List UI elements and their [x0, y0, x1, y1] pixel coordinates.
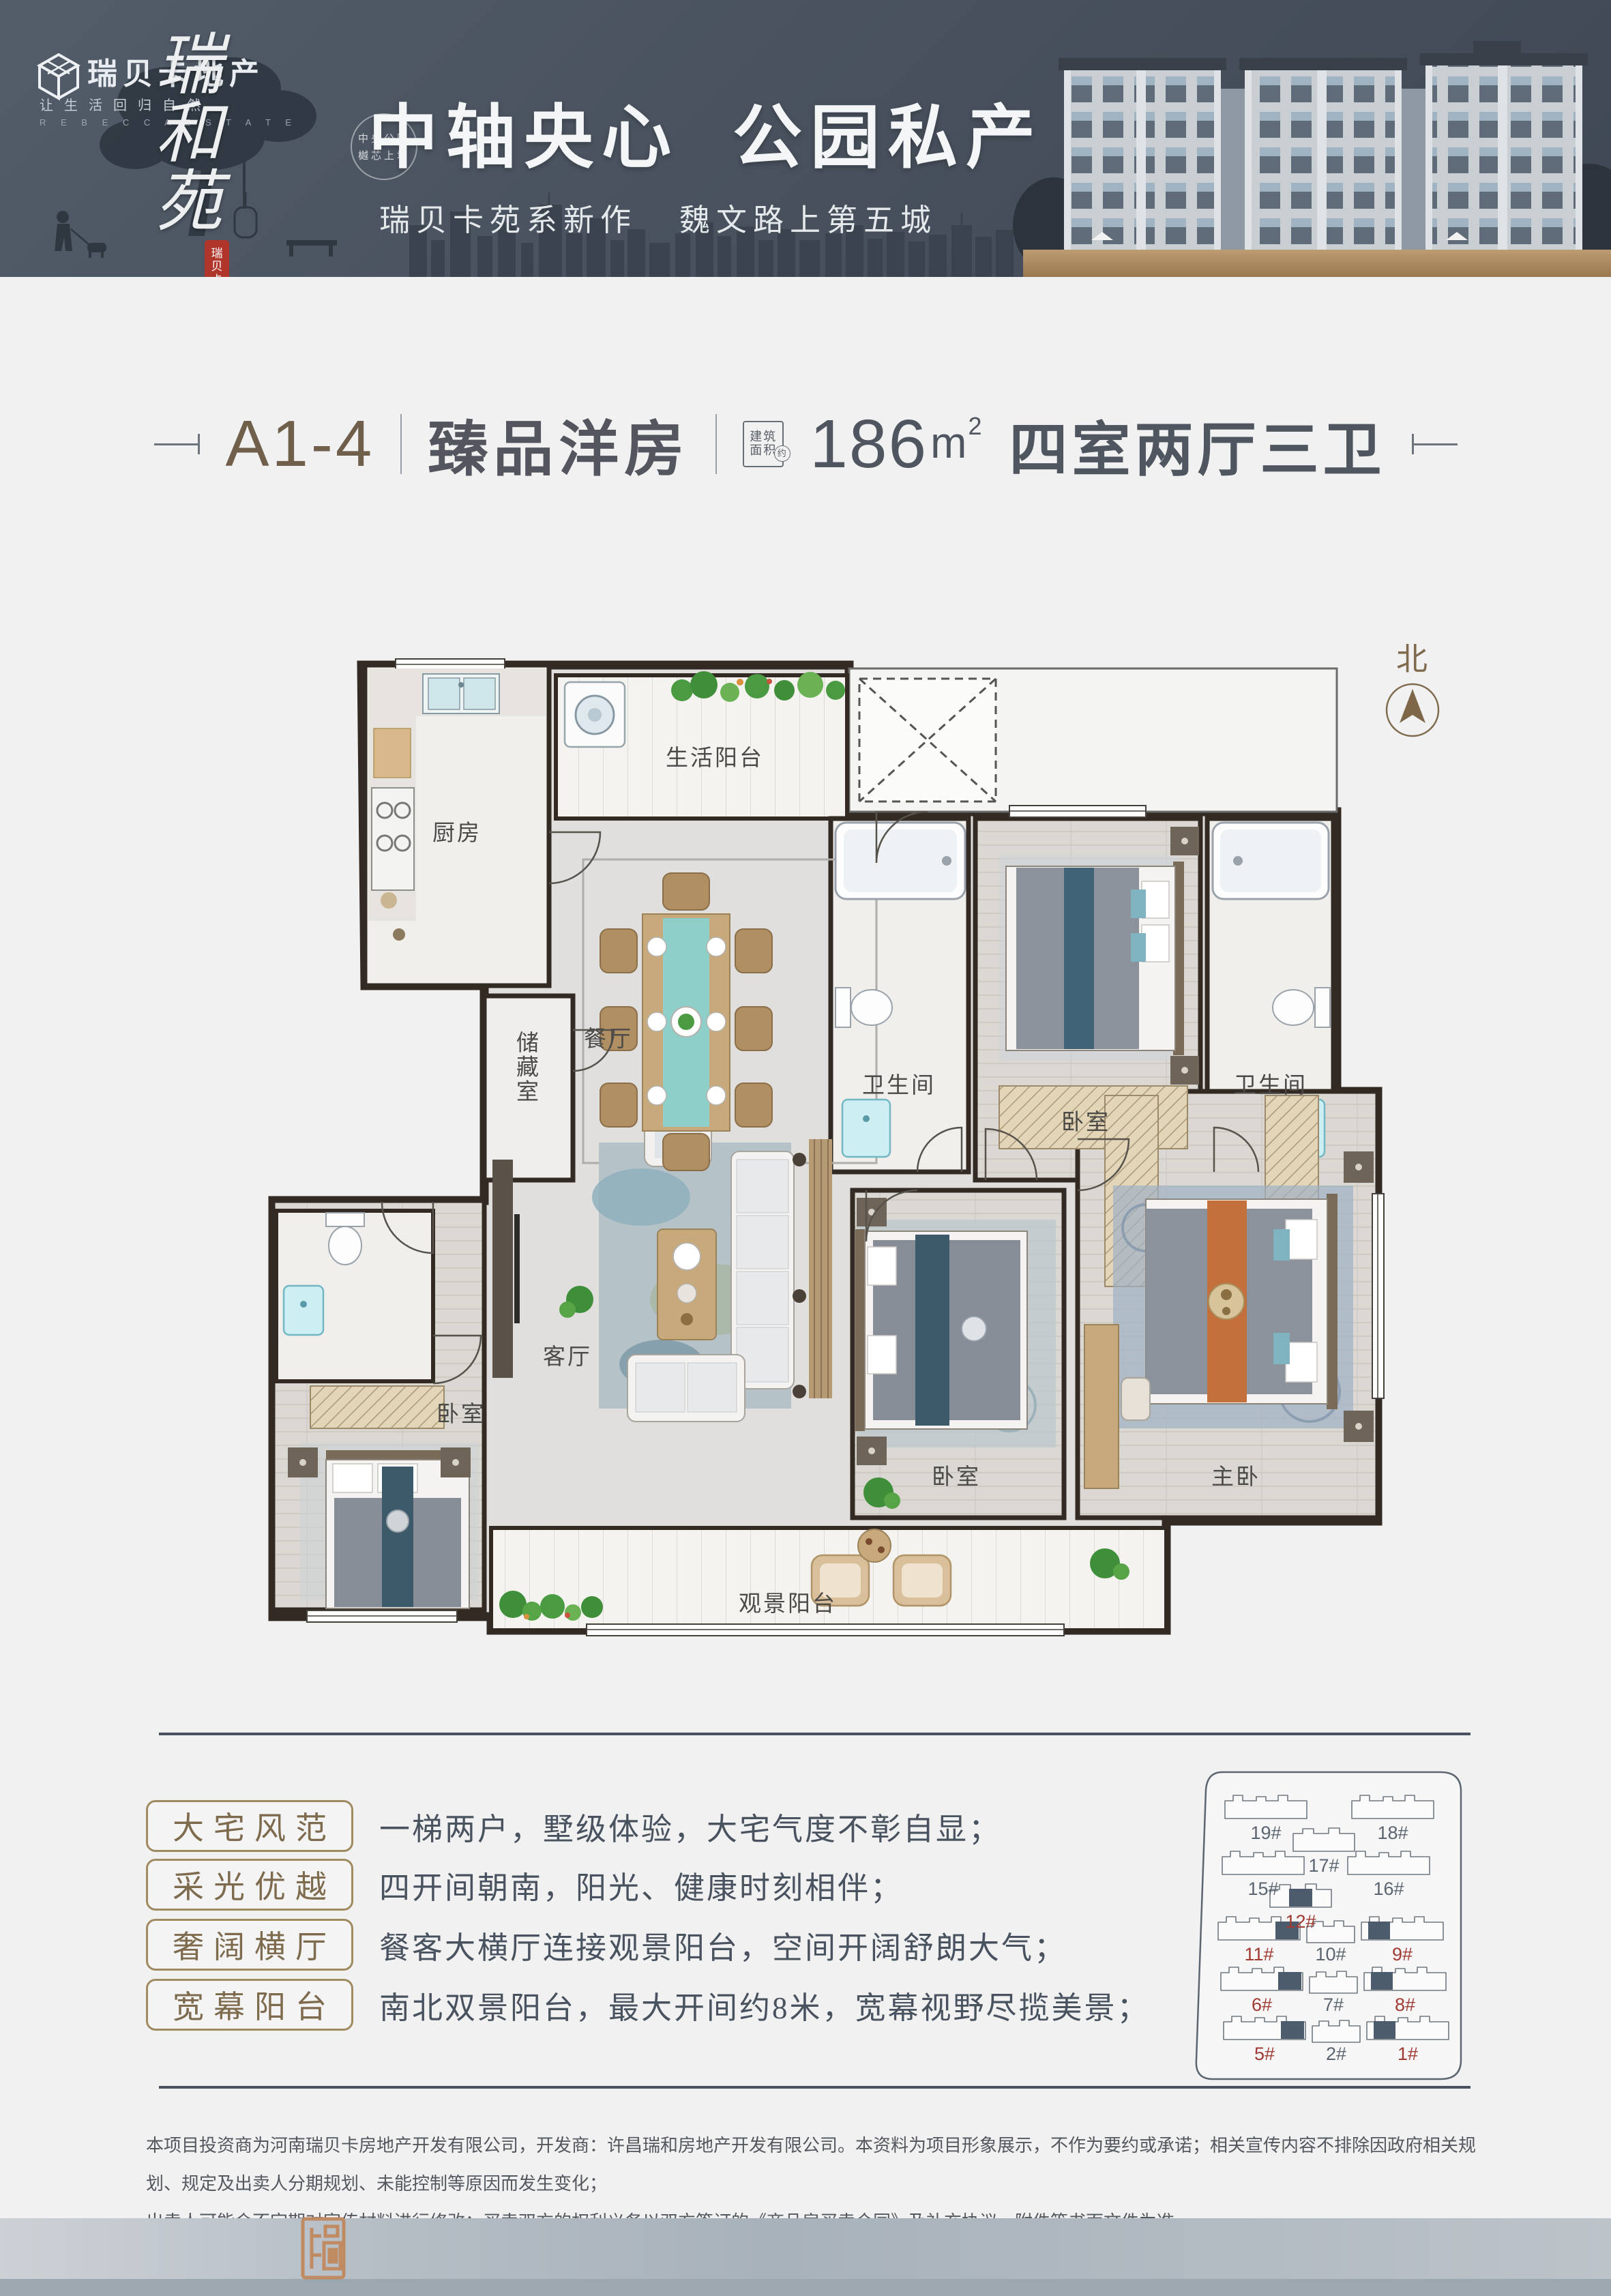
- building-17-label: 17#: [1308, 1855, 1339, 1876]
- feature-label: 奢阔横厅: [173, 1922, 336, 1967]
- label-west-bedroom: 卧室: [437, 1402, 486, 1427]
- label-south-balcony: 观景阳台: [739, 1591, 837, 1617]
- building-7-label: 7#: [1323, 1995, 1344, 2015]
- building-15-label: 15#: [1247, 1879, 1278, 1899]
- spec-header: A1-4 臻品洋房 建筑 面积 约 186 m 2 四室两厅三卫: [0, 393, 1611, 495]
- north-label: 北: [1375, 634, 1450, 679]
- building-5-label: 5#: [1254, 2044, 1275, 2064]
- label-dining: 餐厅: [584, 1027, 633, 1052]
- poster-page: 瑞贝卡地产 让生活回归自然 R E B E C C A E S T A T E …: [0, 0, 1611, 2296]
- feature-desc: 南北双景阳台，最大开间约8米，宽幕视野尽揽美景；: [379, 1983, 1150, 2027]
- divider: [400, 414, 402, 474]
- north-bedroom-furniture: [999, 827, 1199, 1149]
- building-11-label: 11#: [1244, 1944, 1273, 1964]
- banner: 瑞贝卡地产 让生活回归自然 R E B E C C A E S T A T E …: [0, 0, 1611, 277]
- building-2-label: 2#: [1326, 2044, 1346, 2064]
- label-living: 客厅: [543, 1344, 592, 1370]
- building-8-label: 8#: [1395, 1995, 1415, 2015]
- brand-seal: 瑞贝卡: [205, 240, 229, 277]
- building-19-label: 19#: [1250, 1823, 1281, 1843]
- seal-text: 瑞贝卡: [211, 247, 223, 277]
- birdcage-silhouette: [235, 192, 256, 237]
- feature-label-box: 大宅风范: [146, 1800, 353, 1852]
- building-9-label: 9#: [1392, 1944, 1413, 1964]
- footer-band-upper: [0, 2218, 1611, 2279]
- elevator-shaft: [859, 679, 996, 801]
- label-bath-b: 卫生间: [1234, 1073, 1307, 1098]
- area-unit-sup: 2: [968, 412, 983, 441]
- area-box-line2: 面积: [750, 444, 777, 458]
- person-dog-silhouette: [55, 211, 106, 258]
- feature-desc: 四开间朝南，阳光、健康时刻相伴；: [379, 1863, 903, 1907]
- feature-label-box: 采光优越: [146, 1859, 353, 1911]
- separator-top: [159, 1733, 1470, 1735]
- subtitle-right: 魏文路上第五城: [679, 195, 937, 239]
- main-title-part1: 中轴央心: [368, 82, 679, 182]
- feature-label: 大宅风范: [173, 1804, 336, 1849]
- area-label-box: 建筑 面积 约: [743, 421, 784, 467]
- brand-calligraphy: 瑞和苑: [151, 33, 226, 237]
- feature-label-box: 宽幕阳台: [146, 1979, 353, 2031]
- north-arrow-icon: [1382, 679, 1443, 741]
- feature-label-box: 奢阔横厅: [146, 1919, 353, 1971]
- area-value: 186 m 2: [810, 405, 983, 484]
- label-kitchen: 厨房: [432, 821, 482, 846]
- banner-subtitle: 瑞贝卡苑系新作 魏文路上第五城: [379, 195, 1061, 239]
- gold-base-bar: [1023, 250, 1611, 277]
- footer-seal-ornament: [301, 2217, 346, 2280]
- feature-label: 宽幕阳台: [173, 1982, 336, 2027]
- label-bath-a: 卫生间: [862, 1073, 936, 1098]
- area-box-line1: 建筑: [750, 430, 777, 444]
- divider: [715, 414, 717, 474]
- main-title-part2: 公园私产: [733, 82, 1044, 182]
- building-10-label: 10#: [1315, 1944, 1346, 1964]
- feature-desc: 餐客大横厅连接观景阳台，空间开阔舒朗大气；: [379, 1923, 1067, 1967]
- building-16-label: 16#: [1373, 1879, 1404, 1899]
- unit-code: A1-4: [226, 407, 375, 482]
- label-north-balcony: 生活阳台: [666, 746, 764, 771]
- layout-desc: 四室两厅三卫: [1009, 402, 1386, 487]
- subtitle-left: 瑞贝卡苑系新作: [379, 195, 637, 239]
- disclaimer-line1: 本项目投资商为河南瑞贝卡房地产开发有限公司，开发商：许昌瑞和房地产开发有限公司。…: [146, 2127, 1476, 2203]
- label-center-bedroom: 卧室: [932, 1465, 981, 1490]
- feature-label: 采光优越: [173, 1862, 336, 1907]
- site-map: 19# 18# 17# 15# 16# 12# 11# 10# 9# 6# 7#…: [1189, 1768, 1466, 2091]
- label-master-bedroom: 主卧: [1211, 1465, 1260, 1490]
- product-type: 臻品洋房: [428, 401, 690, 488]
- left-end-mark: [154, 434, 200, 454]
- north-indicator: 北: [1375, 634, 1450, 744]
- building-rendering: [1013, 41, 1611, 277]
- bench-silhouette: [286, 240, 337, 256]
- feature-desc: 一梯两户，墅级体验，大宅气度不彰自显；: [379, 1804, 1001, 1849]
- floor-plan: 厨房 生活阳台 餐厅 储藏室 卫生间 卧室 卫生间 客厅 卧室 卧室 主卧 观景…: [259, 614, 1385, 1637]
- area-number: 186: [810, 405, 928, 484]
- area-unit: m: [930, 417, 968, 468]
- label-north-bedroom: 卧室: [1061, 1110, 1110, 1135]
- banner-main-title: 中轴央心 公园私产: [368, 82, 1078, 182]
- building-18-label: 18#: [1377, 1823, 1408, 1843]
- building-12-label: 12#: [1285, 1911, 1316, 1932]
- approx-circle: 约: [774, 445, 790, 462]
- building-6-label: 6#: [1252, 1995, 1272, 2015]
- building-1-label: 1#: [1398, 2044, 1418, 2064]
- brand-logo-icon: [40, 55, 78, 98]
- right-end-mark: [1412, 434, 1458, 454]
- label-storage: 储藏室: [516, 1031, 541, 1104]
- footer-band-lower: [0, 2279, 1611, 2296]
